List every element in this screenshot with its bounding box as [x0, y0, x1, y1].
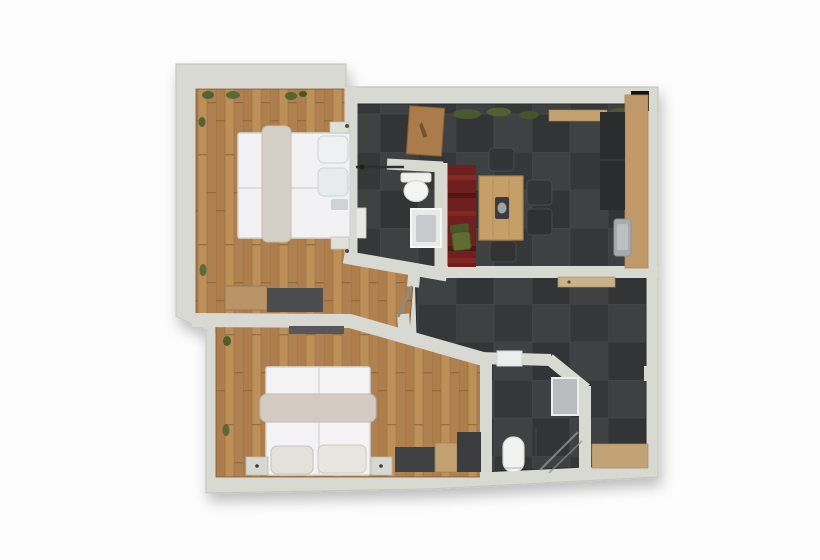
wall-hall-door-upper	[413, 266, 415, 287]
bath2-sink	[497, 351, 522, 366]
nightstand-right-knob	[379, 464, 383, 468]
nightstand-left-knob	[255, 464, 259, 468]
chair-south	[490, 241, 516, 262]
chair-east-1	[527, 180, 552, 205]
bed1-pillow-bottom	[318, 168, 348, 196]
bedroom1-nightstand-bottom	[331, 237, 349, 249]
door-hinge-dot-bottom	[345, 249, 349, 253]
bedroom2-plant-1	[223, 336, 231, 346]
bath1-shelf	[356, 208, 366, 238]
bed1-folded-towel	[331, 199, 348, 210]
bedroom2-plant-2	[223, 424, 230, 436]
chair-east-2	[527, 209, 552, 235]
bedroom1-sideboard-wood	[225, 286, 267, 310]
chair-north	[489, 148, 514, 171]
floor-plan-canvas	[0, 0, 820, 560]
shower1-head	[359, 164, 364, 169]
door-hinge-dot-top	[345, 124, 349, 128]
bed2-pillow-right	[318, 445, 366, 473]
hall-bench	[558, 277, 615, 287]
kitchen-sink-basin	[617, 224, 628, 250]
toilet1-bowl	[404, 181, 428, 202]
bed1-pillow-top	[318, 136, 348, 163]
bedroom1-sideboard-dark	[267, 288, 323, 312]
toilet2-bowl	[503, 437, 524, 472]
floor-plan-image	[0, 0, 820, 560]
bath1-shower-tray-base	[416, 215, 436, 242]
bedroom2-wall-tv	[289, 326, 344, 334]
bedroom2-cabinet-wood	[435, 443, 457, 472]
hall-doormat	[592, 444, 648, 468]
bath2-tray	[552, 378, 578, 415]
entry-mat	[406, 106, 444, 156]
bed1-blanket	[262, 126, 291, 242]
chair-west-green	[450, 223, 472, 251]
bedroom2-dresser-dark	[457, 432, 481, 472]
cabinet-strip-top	[549, 110, 607, 121]
wall-nub-right	[644, 366, 657, 381]
kitchen-appliances	[600, 112, 625, 210]
table-bowl	[498, 203, 507, 214]
bedroom2-bench-dark	[395, 447, 435, 472]
bed2-pillow-left	[271, 446, 313, 474]
hall-bench-knob	[567, 280, 570, 283]
bed2-blanket	[260, 394, 376, 422]
